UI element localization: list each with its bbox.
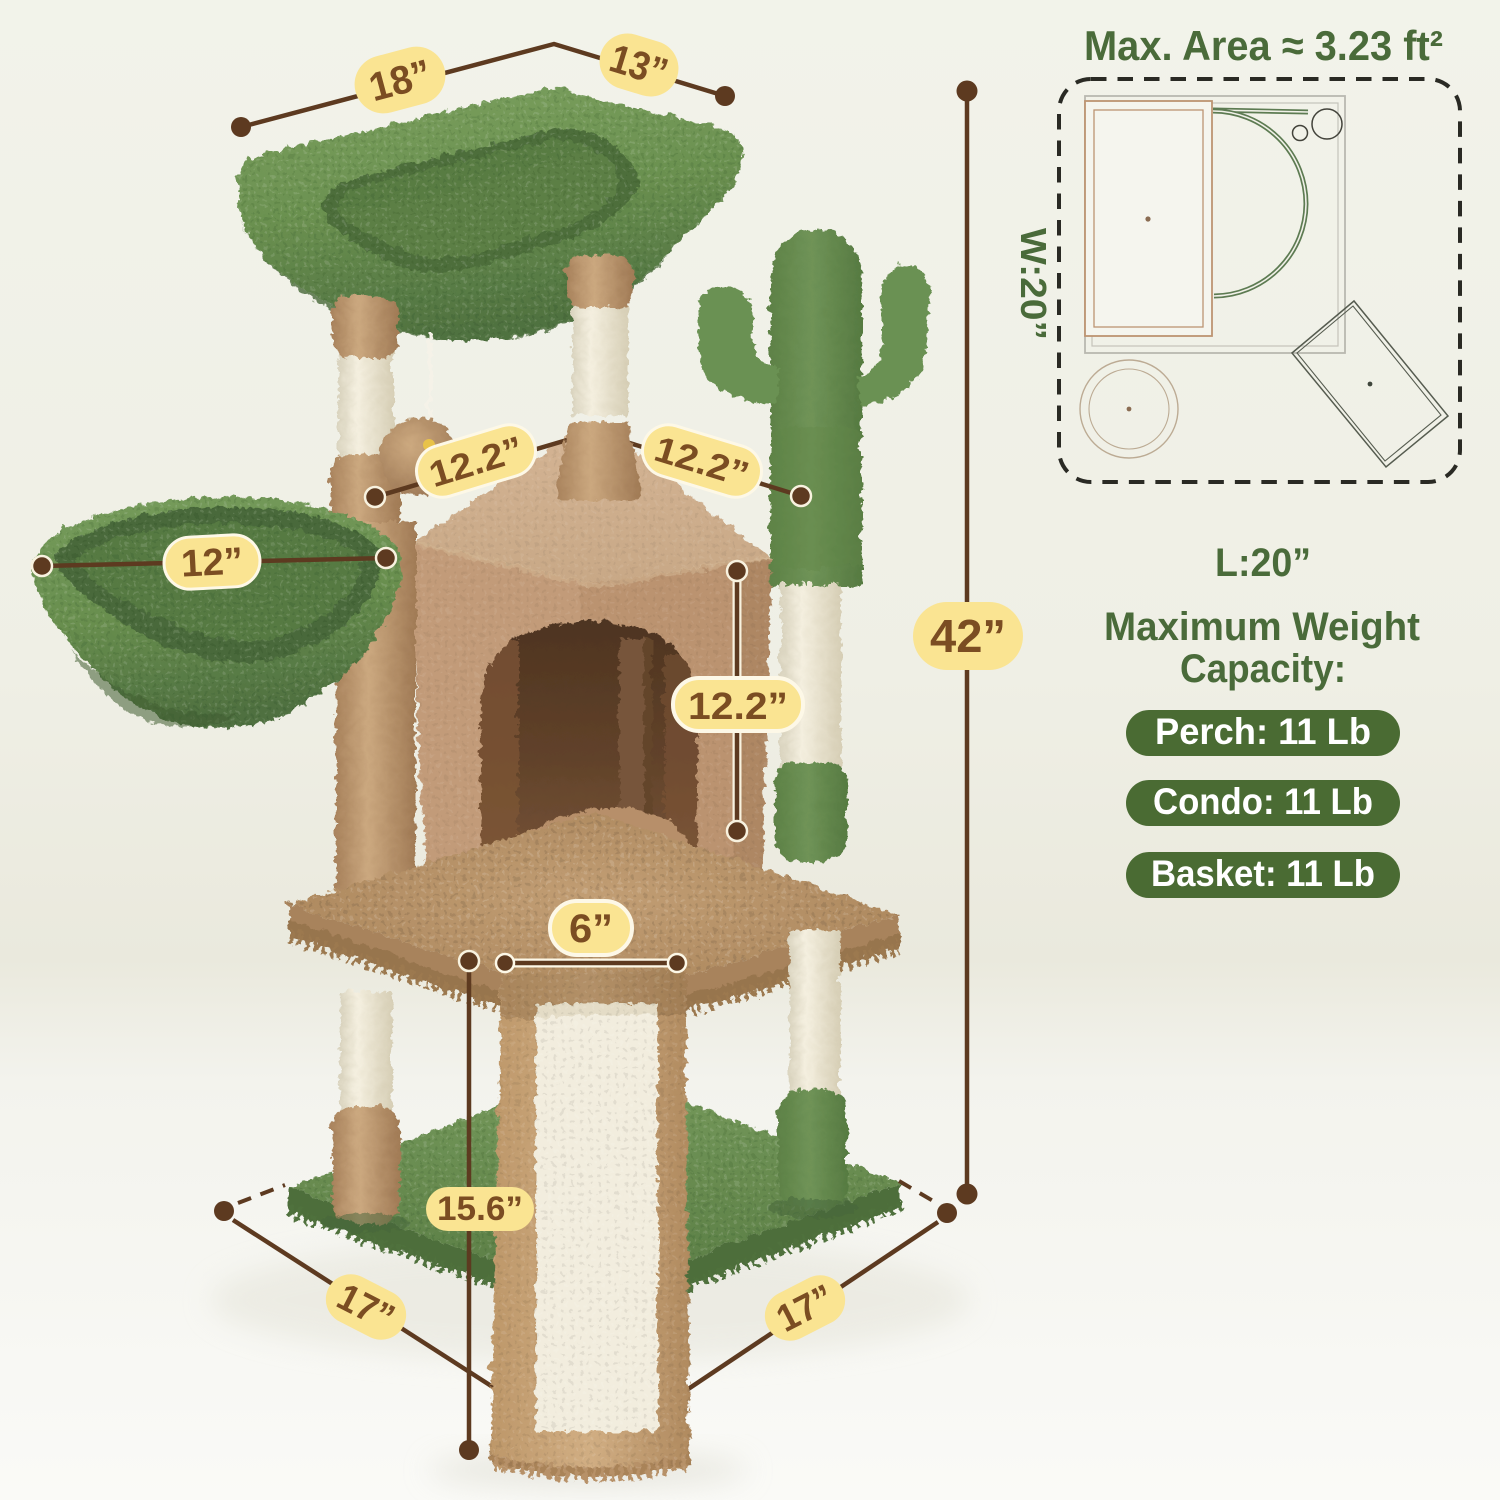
svg-text:Max. Area ≈ 3.23 ft²: Max. Area ≈ 3.23 ft² [1084,22,1443,69]
svg-text:L:20”: L:20” [1215,541,1311,585]
svg-text:42”: 42” [930,610,1006,662]
svg-text:Maximum Weight: Maximum Weight [1104,605,1420,649]
svg-text:Perch: 11 Lb: Perch: 11 Lb [1155,711,1371,752]
svg-text:15.6”: 15.6” [437,1190,523,1228]
svg-text:Condo: 11 Lb: Condo: 11 Lb [1153,781,1373,822]
svg-text:Basket: 11 Lb: Basket: 11 Lb [1151,853,1375,894]
svg-text:W:20”: W:20” [1013,228,1054,340]
svg-text:6”: 6” [569,907,613,951]
svg-text:12”: 12” [180,540,244,585]
svg-text:Capacity:: Capacity: [1180,647,1346,691]
svg-text:12.2”: 12.2” [688,686,788,728]
